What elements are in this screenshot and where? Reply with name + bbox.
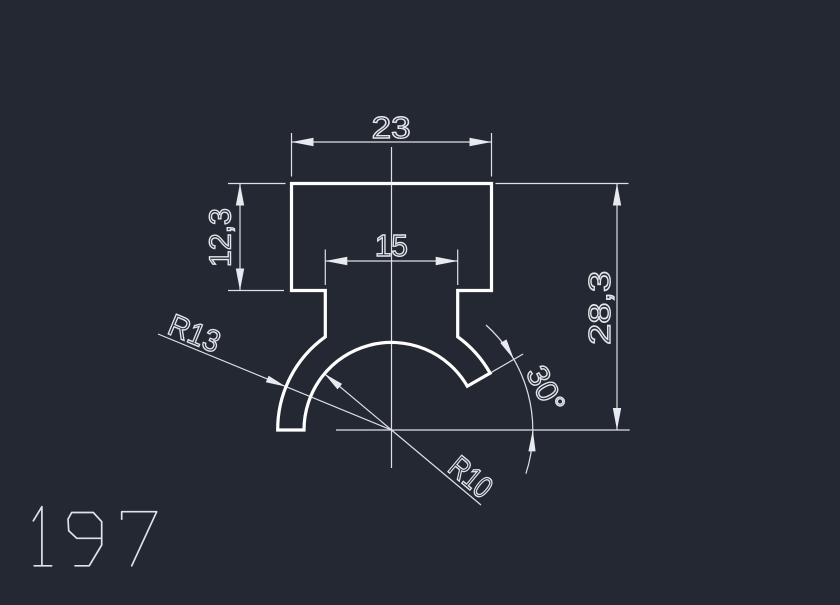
svg-text:15: 15 (375, 228, 408, 263)
svg-text:23: 23 (372, 110, 411, 145)
svg-text:12,3: 12,3 (203, 208, 238, 267)
svg-text:28,3: 28,3 (582, 271, 617, 345)
